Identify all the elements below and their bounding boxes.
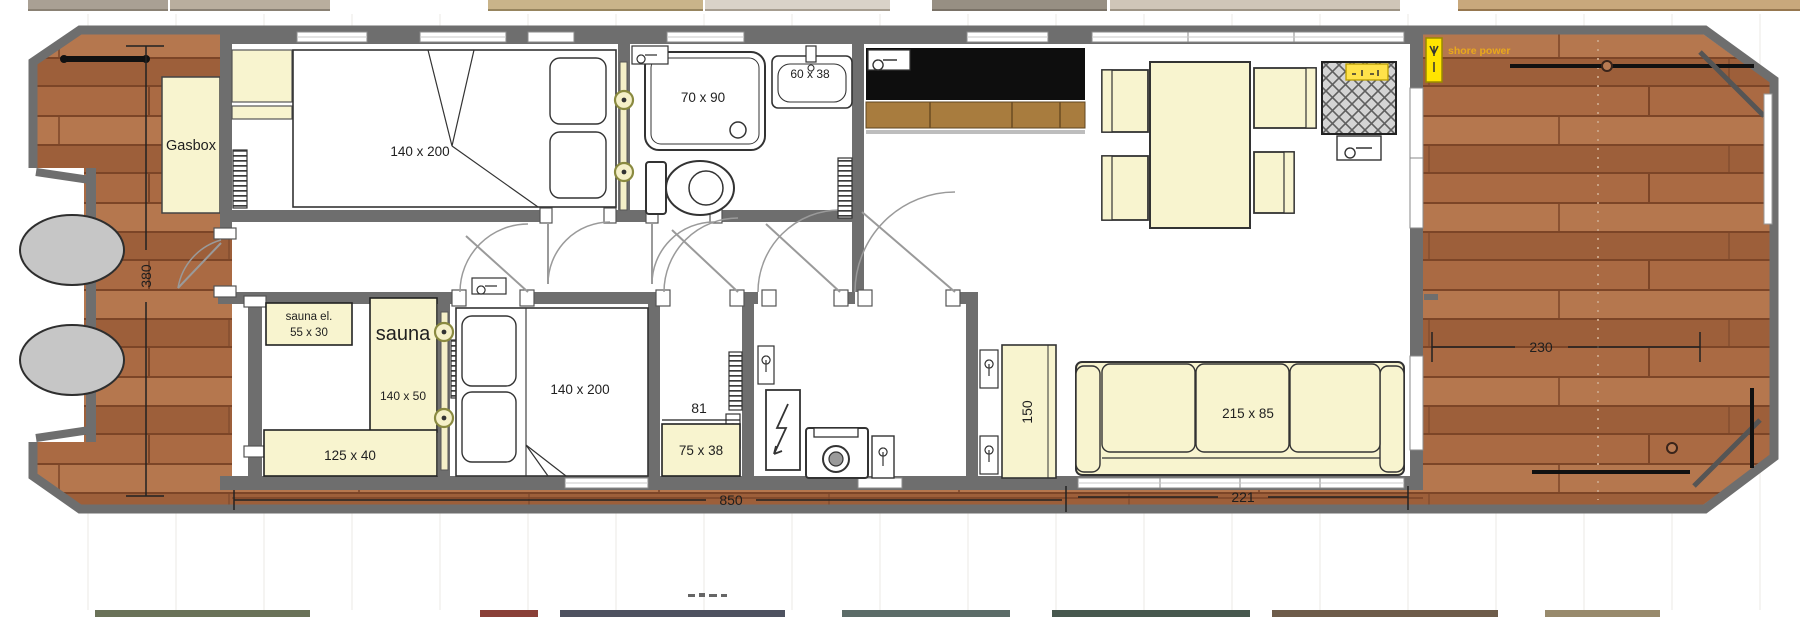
gasbox-label: Gasbox (166, 138, 217, 154)
dining-table (1150, 62, 1250, 228)
bed2-size-label: 140 x 200 (550, 382, 609, 397)
electrical-panel-icon (766, 390, 800, 470)
window-tech-south (858, 478, 902, 488)
wall-tech-living (966, 304, 978, 478)
shower-size-label: 70 x 90 (681, 90, 725, 105)
stove-control-panel (1346, 64, 1388, 80)
kit-cabinets-brown (866, 102, 1085, 128)
tall-cabinet: 150 (1002, 345, 1056, 478)
deck-fitting (1602, 61, 1612, 71)
shore-power-icon (1426, 38, 1442, 82)
hall-cabinet-label: 75 x 38 (679, 443, 723, 458)
bed1-size-label: 140 x 200 (390, 144, 449, 159)
bow-bollard-icon (60, 55, 150, 63)
wall-bed2-hall (648, 304, 660, 478)
engine-pod-top (20, 215, 124, 285)
bedroom-2: 140 x 200 (435, 308, 648, 476)
stern-deck-width-label: 230 (1529, 339, 1553, 355)
sauna-room-label: sauna (376, 323, 431, 345)
sofa-size-label: 215 x 85 (1222, 406, 1274, 421)
sink-size-label: 60 x 38 (790, 67, 830, 81)
wall-hall-tech (742, 304, 754, 478)
living-window-width-label: 221 (1231, 489, 1255, 505)
hall-width-label: 81 (691, 400, 707, 416)
toilet (646, 161, 734, 215)
sofa-cushion (1290, 364, 1380, 452)
window-east (1410, 356, 1423, 450)
sofa-armrest (1380, 366, 1404, 472)
wall-corridor-b (528, 292, 664, 304)
radiator-icon (838, 158, 852, 218)
sauna-heater-label2: 55 x 30 (290, 327, 328, 339)
living-room: 150 215 x 85 (980, 345, 1404, 478)
radiator-icon (729, 352, 742, 410)
deck-fitting (1667, 443, 1677, 453)
cropped-dimension-remnant (688, 593, 727, 597)
houseboat-floorplan: 380 Gasbox (0, 0, 1800, 617)
wardrobe (232, 50, 292, 102)
tall-cabinet-label: 150 (1019, 400, 1035, 424)
bow-deck-width-label: 380 (138, 264, 154, 288)
wall-bed1-south-a (232, 210, 548, 222)
sauna-heater: sauna el. 55 x 30 (266, 303, 352, 345)
engine-pod-bottom (20, 325, 124, 395)
wall-bath-kitchen (852, 30, 864, 292)
window-bed1-c (528, 32, 574, 42)
stern-deck (1423, 34, 1770, 505)
sauna-bench-side: sauna 140 x 50 (370, 298, 437, 432)
shore-power-label: shore power (1448, 45, 1510, 57)
sauna-bench-side-label: 140 x 50 (380, 389, 426, 403)
gasbox: Gasbox (162, 77, 220, 213)
floorplan-page: 380 Gasbox (0, 0, 1800, 617)
bottom-strip (95, 610, 1660, 617)
wall-west-upper (220, 30, 232, 237)
sauna-bench-bottom: 125 x 40 (264, 430, 437, 476)
sofa-cushion (1102, 364, 1195, 452)
bow-notch (26, 168, 84, 442)
bed-1 (293, 50, 616, 207)
cabin-length-label: 850 (719, 492, 743, 508)
radiator-icon (233, 150, 247, 208)
top-strip (28, 0, 1800, 11)
sauna-bench-bottom-label: 125 x 40 (324, 448, 376, 463)
sofa-armrest (1076, 366, 1100, 472)
washing-machine (806, 428, 868, 478)
sauna-heater-label1: sauna el. (286, 311, 333, 323)
